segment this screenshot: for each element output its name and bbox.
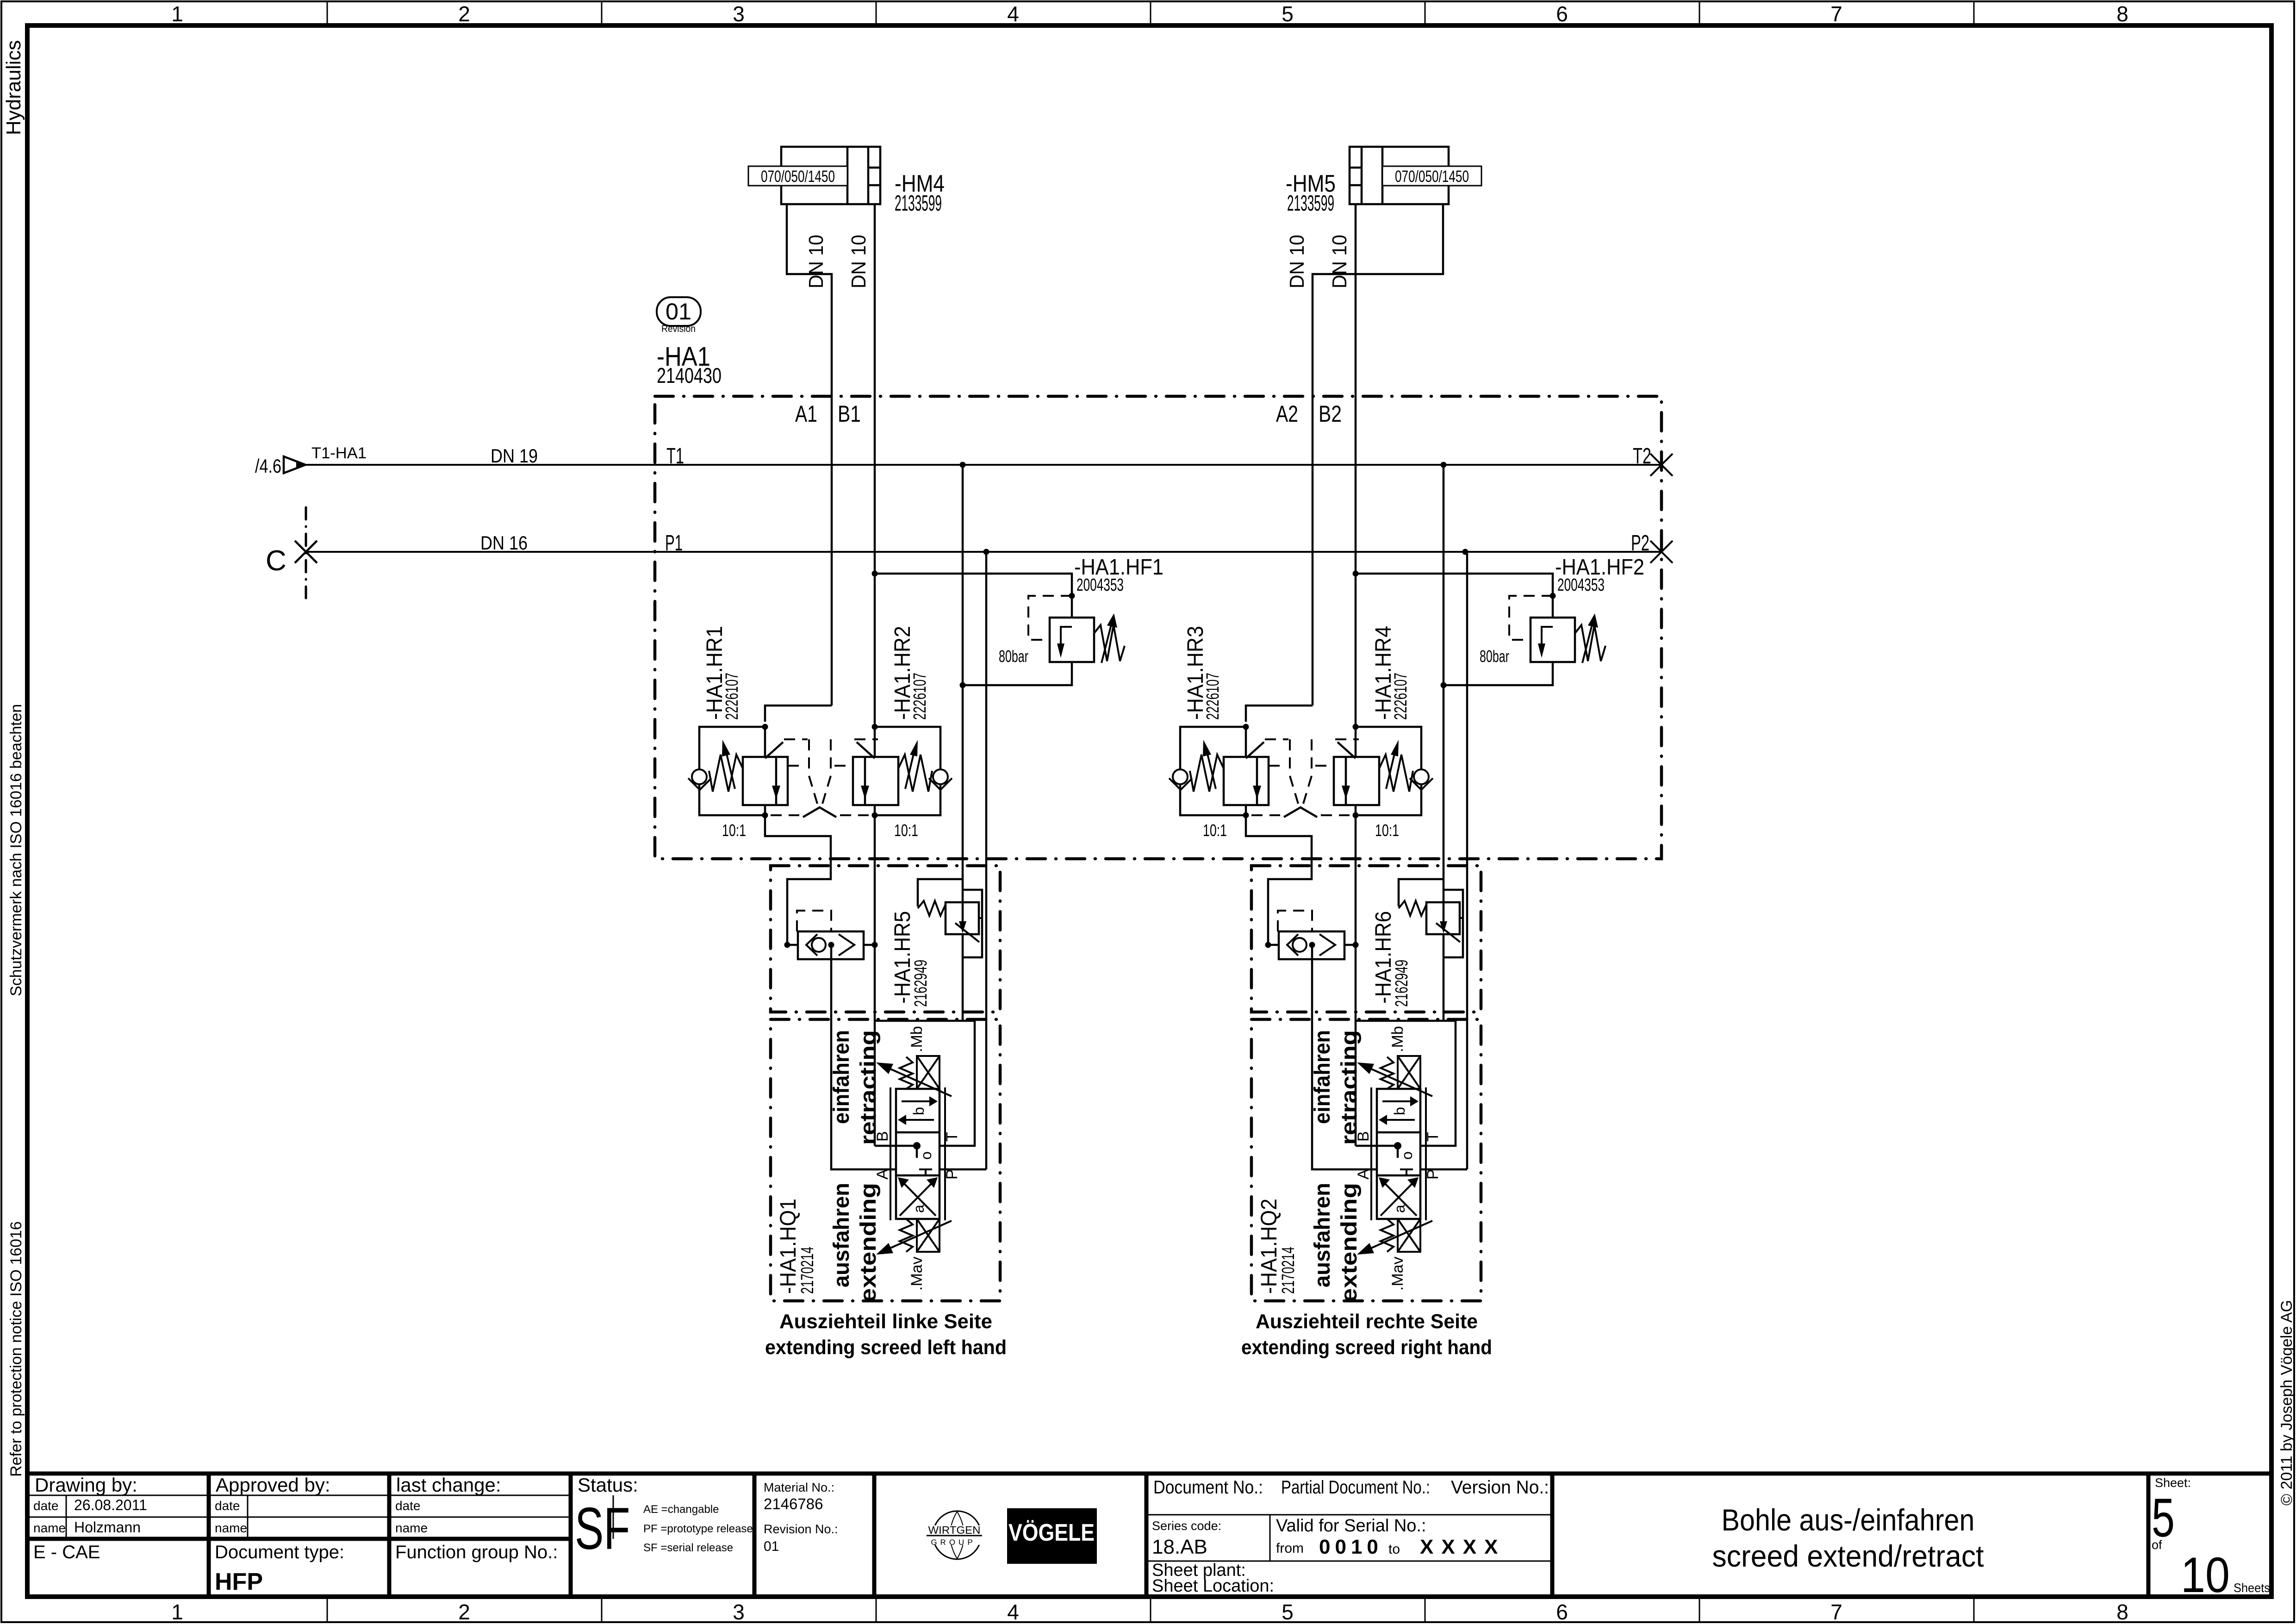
svg-text:T: T xyxy=(943,1132,961,1142)
svg-text:.Mb: .Mb xyxy=(908,1026,926,1052)
svg-text:screed extend/retract: screed extend/retract xyxy=(1712,1539,1984,1573)
svg-text:Revision No.:: Revision No.: xyxy=(764,1522,838,1536)
svg-text:6: 6 xyxy=(1556,2,1568,26)
svg-text:name: name xyxy=(395,1521,428,1535)
svg-text:5: 5 xyxy=(1282,1600,1294,1624)
svg-text:2133599: 2133599 xyxy=(895,191,942,216)
svg-text:2140430: 2140430 xyxy=(657,363,722,387)
svg-text:1: 1 xyxy=(171,1600,183,1624)
svg-text:Holzmann: Holzmann xyxy=(74,1519,141,1536)
svg-text:0010: 0010 xyxy=(1319,1536,1383,1558)
svg-text:einfahren: einfahren xyxy=(829,1030,854,1124)
svg-text:date: date xyxy=(395,1499,421,1513)
svg-text:PF =prototype release: PF =prototype release xyxy=(643,1523,753,1535)
svg-text:date: date xyxy=(215,1499,240,1513)
svg-text:18.AB: 18.AB xyxy=(1152,1536,1207,1558)
svg-text:10:1: 10:1 xyxy=(894,821,918,840)
svg-text:last change:: last change: xyxy=(396,1474,501,1496)
svg-text:HFP: HFP xyxy=(215,1568,263,1595)
svg-text:.Mav: .Mav xyxy=(908,1256,926,1291)
svg-text:7: 7 xyxy=(1830,2,1842,26)
svg-text:VÖGELE: VÖGELE xyxy=(1008,1519,1095,1546)
svg-text:b: b xyxy=(910,1107,927,1115)
svg-text:Status:: Status: xyxy=(578,1474,638,1496)
svg-text:10: 10 xyxy=(2181,1547,2230,1603)
svg-text:WIRTGEN: WIRTGEN xyxy=(928,1524,981,1536)
svg-text:Ausziehteil linke Seite: Ausziehteil linke Seite xyxy=(779,1310,992,1333)
svg-text:-HA1.HQ2: -HA1.HQ2 xyxy=(1257,1199,1282,1294)
svg-text:date: date xyxy=(33,1499,59,1513)
svg-text:4: 4 xyxy=(1007,1600,1019,1624)
svg-text:DN 19: DN 19 xyxy=(491,445,538,467)
svg-text:P2: P2 xyxy=(1631,531,1649,556)
svg-text:extending screed left hand: extending screed left hand xyxy=(765,1336,1007,1359)
svg-text:Approved by:: Approved by: xyxy=(216,1474,330,1496)
svg-text:o: o xyxy=(918,1151,934,1160)
svg-text:from: from xyxy=(1276,1541,1304,1556)
svg-text:Hydraulics: Hydraulics xyxy=(2,40,25,135)
svg-text:DN 10: DN 10 xyxy=(847,235,870,288)
svg-text:Series code:: Series code: xyxy=(1152,1519,1221,1533)
svg-text:P1: P1 xyxy=(665,531,683,556)
svg-text:T2: T2 xyxy=(1633,444,1651,468)
svg-text:DN 16: DN 16 xyxy=(480,532,528,554)
svg-text:3: 3 xyxy=(733,1600,745,1624)
svg-text:2162949: 2162949 xyxy=(1392,960,1412,1007)
svg-text:Function group No.:: Function group No.: xyxy=(395,1542,558,1562)
svg-text:2146786: 2146786 xyxy=(764,1495,823,1512)
svg-text:10:1: 10:1 xyxy=(722,821,746,840)
svg-text:DN 10: DN 10 xyxy=(1286,235,1308,288)
svg-text:© 2011 by Joseph Vögele AG: © 2011 by Joseph Vögele AG xyxy=(2278,1300,2296,1505)
svg-text:01: 01 xyxy=(666,299,691,325)
svg-text:AE =changable: AE =changable xyxy=(643,1503,719,1516)
svg-text:SF: SF xyxy=(575,1496,630,1562)
svg-text:B2: B2 xyxy=(1319,401,1342,427)
svg-text:Refer to protection notice ISO: Refer to protection notice ISO 16016 xyxy=(7,1221,25,1477)
svg-text:Revision: Revision xyxy=(661,324,696,334)
svg-text:2: 2 xyxy=(458,1600,470,1624)
svg-text:name: name xyxy=(33,1521,66,1535)
svg-text:A2: A2 xyxy=(1276,401,1298,427)
svg-text:Bohle aus-/einfahren: Bohle aus-/einfahren xyxy=(1722,1503,1975,1537)
svg-text:3: 3 xyxy=(733,2,745,26)
svg-text:2133599: 2133599 xyxy=(1287,191,1334,216)
svg-text:4: 4 xyxy=(1007,2,1019,26)
svg-text:01: 01 xyxy=(764,1539,779,1554)
svg-text:Ausziehteil rechte Seite: Ausziehteil rechte Seite xyxy=(1256,1310,1478,1333)
svg-text:P: P xyxy=(943,1169,961,1180)
svg-text:a: a xyxy=(910,1205,927,1213)
svg-text:2170214: 2170214 xyxy=(798,1247,817,1294)
svg-text:A: A xyxy=(874,1169,891,1180)
svg-text:/4.6: /4.6 xyxy=(255,455,281,477)
svg-text:A1: A1 xyxy=(795,401,817,427)
svg-text:2226107: 2226107 xyxy=(722,673,742,720)
svg-text:retracting: retracting xyxy=(856,1030,881,1145)
svg-text:DN 10: DN 10 xyxy=(1328,235,1351,288)
svg-text:E - CAE: E - CAE xyxy=(33,1542,100,1562)
svg-text:2162949: 2162949 xyxy=(911,960,931,1007)
svg-text:B1: B1 xyxy=(838,401,861,427)
svg-text:070/050/1450: 070/050/1450 xyxy=(1395,168,1469,186)
svg-text:1: 1 xyxy=(171,2,183,26)
svg-text:Schutzvermerk nach ISO 16016 b: Schutzvermerk nach ISO 16016 beachten xyxy=(7,704,25,996)
svg-text:Drawing by:: Drawing by: xyxy=(35,1474,137,1496)
svg-text:2004353: 2004353 xyxy=(1076,575,1124,595)
svg-text:Document No.:: Document No.: xyxy=(1153,1477,1263,1498)
svg-text:Document type:: Document type: xyxy=(215,1542,344,1562)
svg-text:GROUP: GROUP xyxy=(931,1538,976,1547)
svg-text:2226107: 2226107 xyxy=(1391,673,1411,720)
svg-text:6: 6 xyxy=(1556,1600,1568,1624)
svg-text:2: 2 xyxy=(458,2,470,26)
svg-text:Valid for Serial No.:: Valid for Serial No.: xyxy=(1276,1516,1426,1536)
svg-text:Partial Document No.:: Partial Document No.: xyxy=(1281,1477,1430,1498)
svg-text:ausfahren: ausfahren xyxy=(829,1183,854,1287)
svg-text:5: 5 xyxy=(1282,2,1294,26)
svg-text:SF =serial release: SF =serial release xyxy=(643,1542,733,1554)
svg-text:80bar: 80bar xyxy=(999,647,1028,666)
svg-text:DN 10: DN 10 xyxy=(805,235,828,288)
svg-text:8: 8 xyxy=(2116,2,2128,26)
svg-text:name: name xyxy=(215,1521,247,1535)
svg-text:Sheet Location:: Sheet Location: xyxy=(1152,1576,1274,1596)
svg-text:Version No.:: Version No.: xyxy=(1451,1477,1549,1498)
svg-text:2170214: 2170214 xyxy=(1279,1247,1298,1294)
svg-text:-HA1.HQ1: -HA1.HQ1 xyxy=(776,1199,801,1294)
svg-text:2226107: 2226107 xyxy=(910,673,930,720)
svg-text:Material No.:: Material No.: xyxy=(764,1480,834,1494)
svg-text:extending: extending xyxy=(856,1183,881,1302)
svg-text:T1: T1 xyxy=(666,444,684,468)
svg-text:Sheets: Sheets xyxy=(2234,1581,2270,1595)
svg-text:of: of xyxy=(2152,1538,2162,1552)
svg-text:7: 7 xyxy=(1830,1600,1842,1624)
svg-text:26.08.2011: 26.08.2011 xyxy=(74,1497,147,1513)
svg-text:2226107: 2226107 xyxy=(1203,673,1223,720)
svg-text:to: to xyxy=(1388,1542,1400,1557)
svg-text:T1-HA1: T1-HA1 xyxy=(311,444,367,462)
svg-text:070/050/1450: 070/050/1450 xyxy=(761,168,835,186)
svg-text:C: C xyxy=(266,545,286,577)
svg-text:XXXX: XXXX xyxy=(1420,1536,1506,1558)
svg-text:extending screed right hand: extending screed right hand xyxy=(1241,1336,1492,1359)
svg-text:8: 8 xyxy=(2116,1600,2128,1624)
svg-text:2004353: 2004353 xyxy=(1557,575,1605,595)
